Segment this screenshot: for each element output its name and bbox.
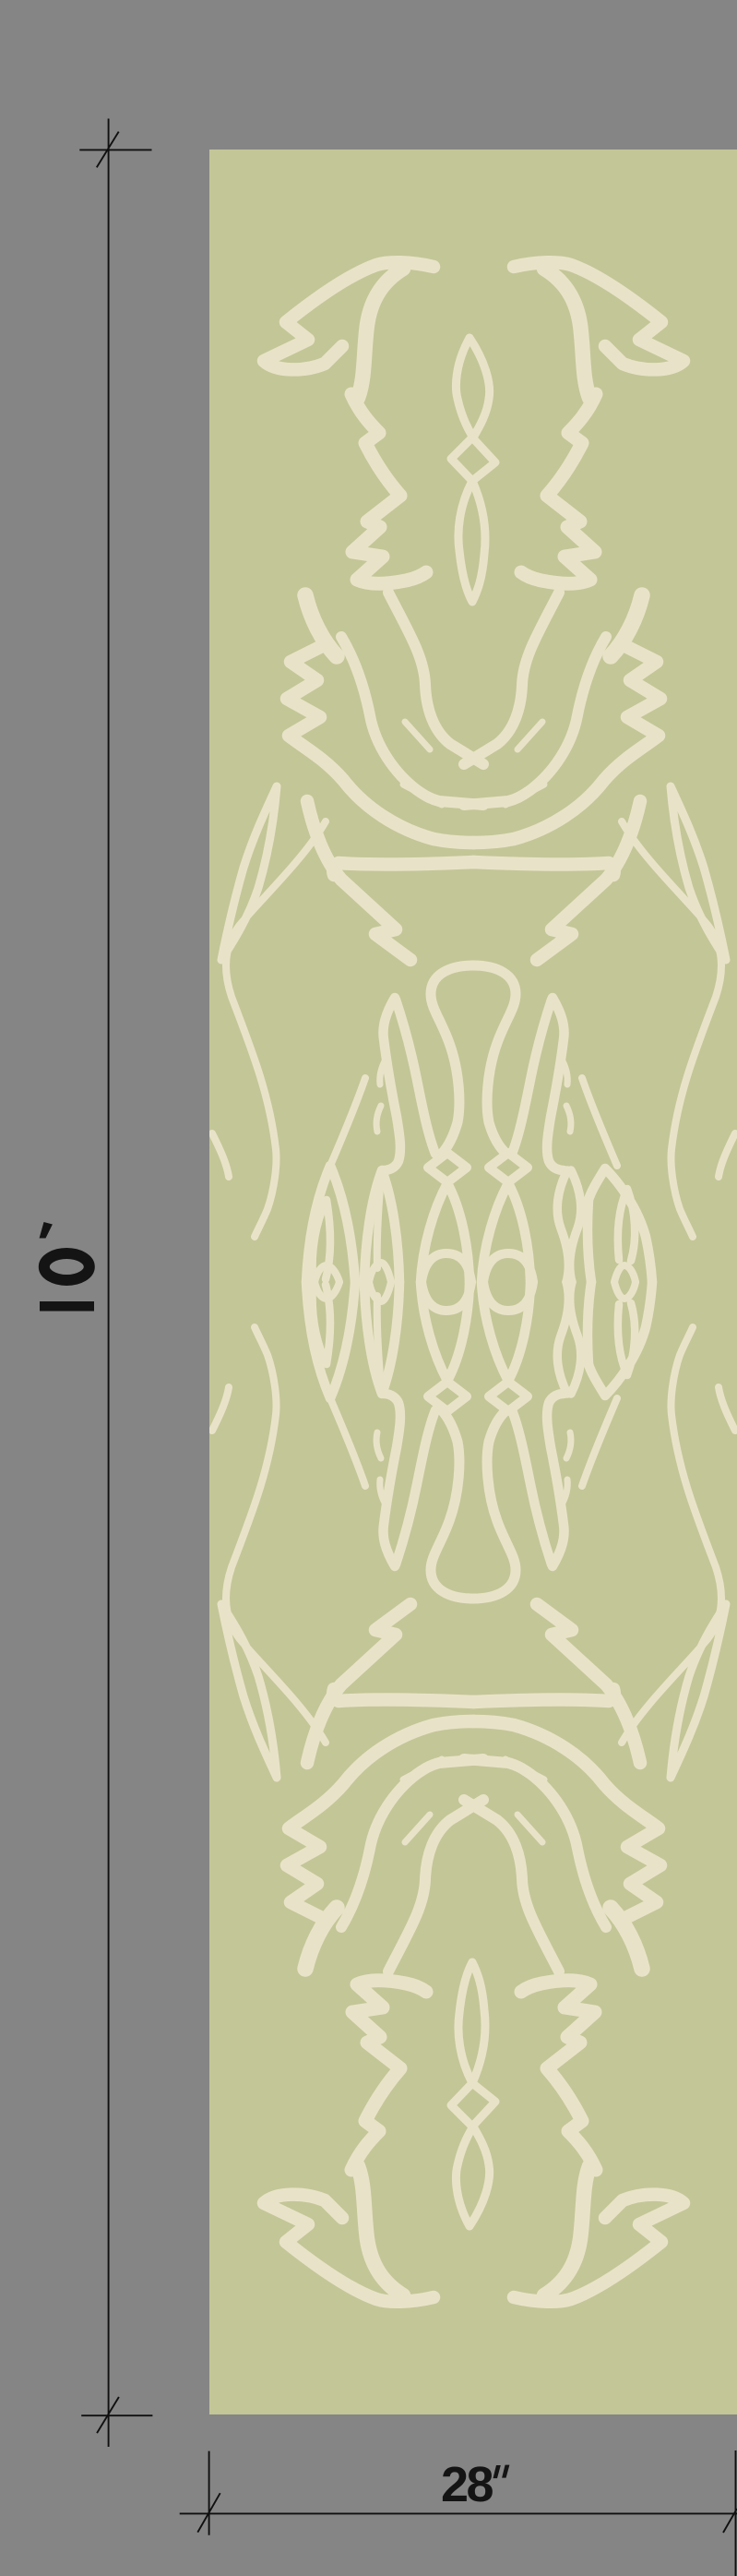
svg-text:28: 28 [441, 2457, 493, 2512]
